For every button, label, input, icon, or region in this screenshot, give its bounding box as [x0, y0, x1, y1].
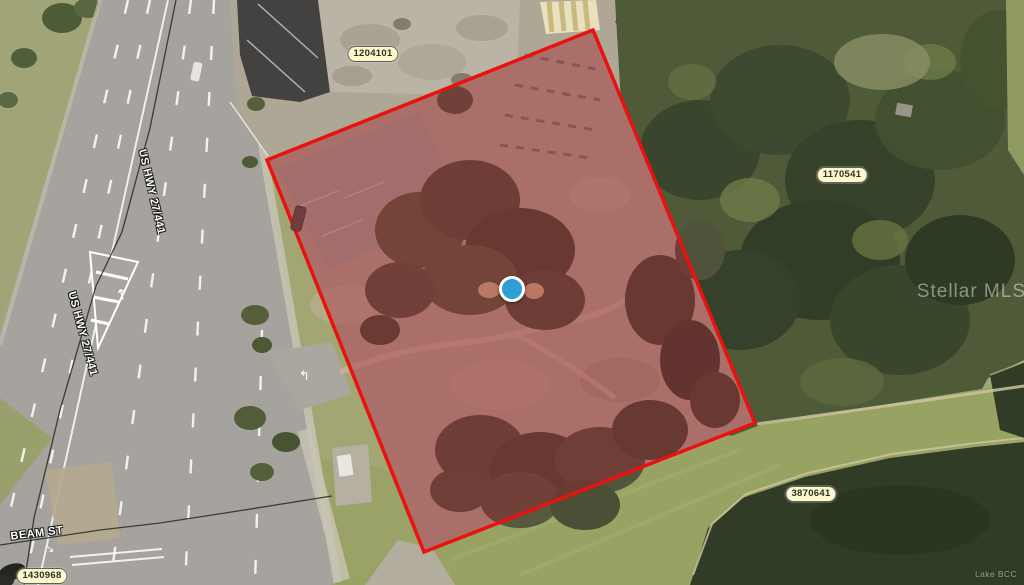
aerial-map-viewport[interactable]: ↑ ↰ ↘ 1204101 1170541 3870641 1430968 US…: [0, 0, 1024, 585]
svg-text:↰: ↰: [299, 369, 310, 384]
dumpster: [337, 454, 354, 477]
aerial-imagery: ↑ ↰ ↘: [0, 0, 1024, 585]
striped-canopy: [540, 0, 600, 34]
dark-roof-building: [237, 0, 330, 102]
svg-text:↘: ↘: [45, 542, 54, 555]
clearing: [834, 34, 930, 90]
